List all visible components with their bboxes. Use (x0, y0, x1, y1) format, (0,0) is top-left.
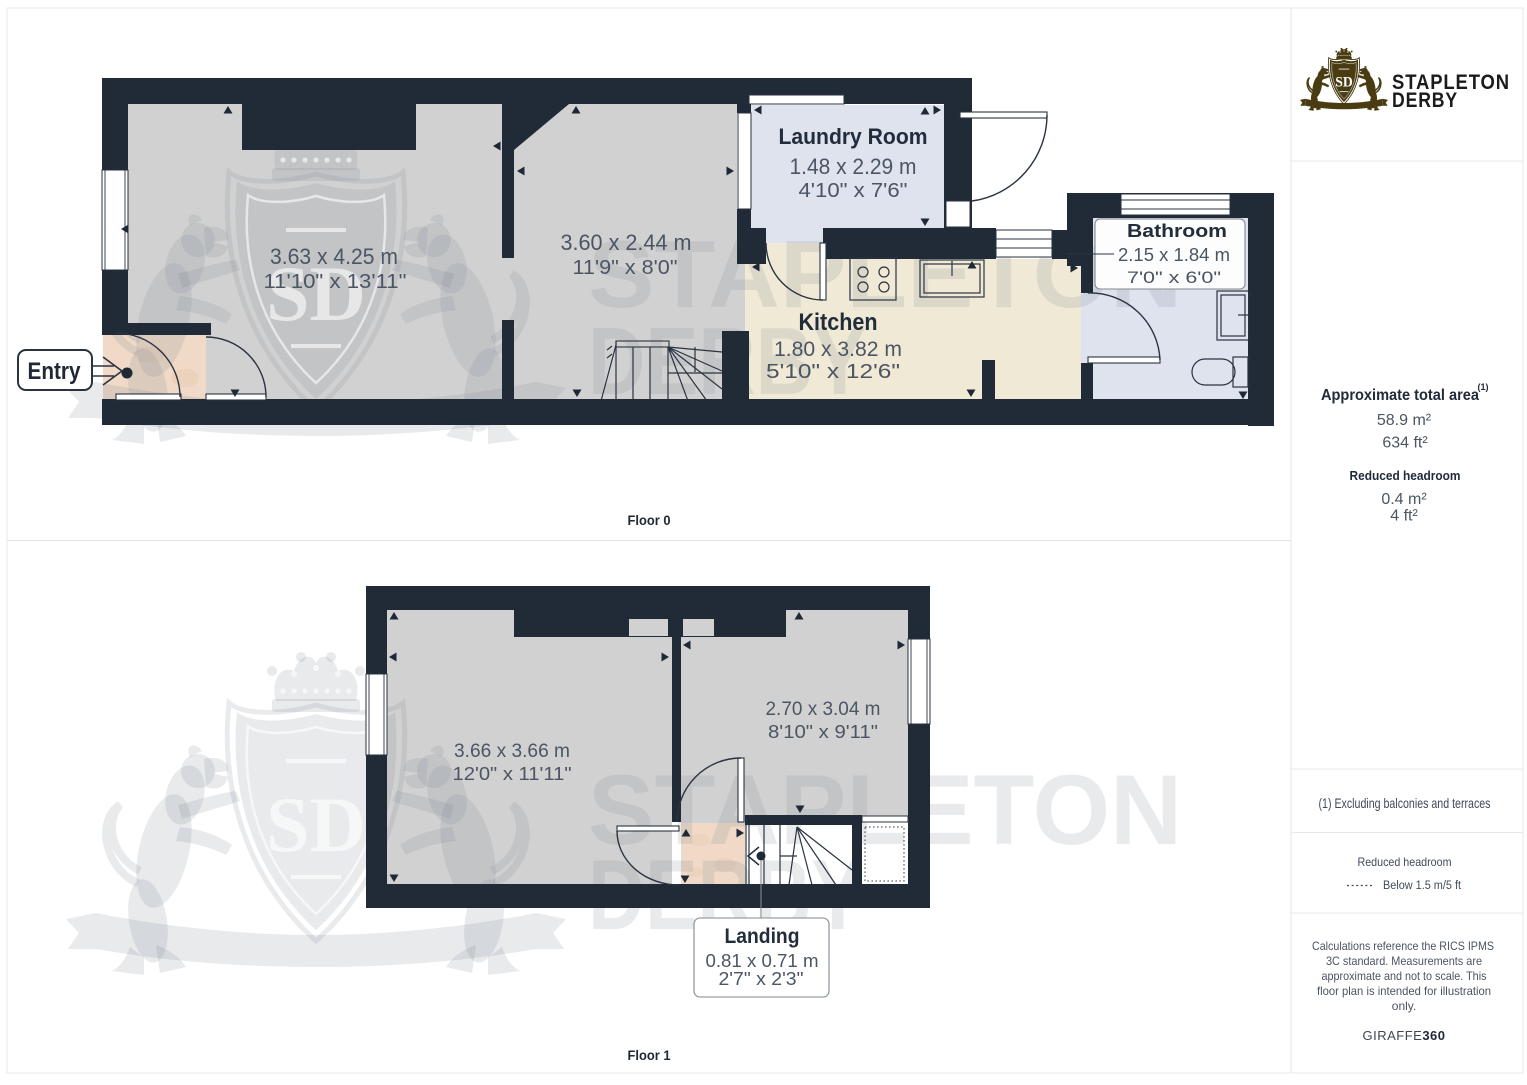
svg-text:floor plan is intended for ill: floor plan is intended for illustration (1317, 984, 1491, 998)
svg-text:3.63 x 4.25 m: 3.63 x 4.25 m (270, 244, 398, 269)
svg-text:SD: SD (1335, 74, 1353, 91)
svg-text:approximate and not to scale.: approximate and not to scale. This (1322, 969, 1487, 983)
svg-text:634 ft²: 634 ft² (1382, 435, 1428, 452)
svg-text:Bathroom: Bathroom (1127, 221, 1227, 241)
svg-text:12'0" x 11'11": 12'0" x 11'11" (453, 763, 572, 784)
svg-text:4'10" x 7'6": 4'10" x 7'6" (799, 179, 908, 202)
svg-text:(1) Excluding balconies and te: (1) Excluding balconies and terraces (1319, 795, 1491, 811)
svg-text:2.15 x 1.84 m: 2.15 x 1.84 m (1118, 245, 1230, 265)
svg-text:7'0" x 6'0": 7'0" x 6'0" (1127, 268, 1221, 287)
svg-text:Approximate total area: Approximate total area (1321, 387, 1479, 404)
svg-text:GIRAFFE360: GIRAFFE360 (1362, 1028, 1445, 1043)
svg-text:Calculations reference the RIC: Calculations reference the RICS IPMS (1312, 939, 1494, 953)
svg-text:11'10" x 13'11": 11'10" x 13'11" (264, 270, 407, 293)
svg-text:Floor 0: Floor 0 (628, 512, 671, 528)
svg-text:only.: only. (1392, 999, 1416, 1013)
svg-text:4 ft²: 4 ft² (1390, 508, 1418, 525)
svg-text:0.4 m²: 0.4 m² (1381, 491, 1427, 508)
svg-text:2.70 x 3.04 m: 2.70 x 3.04 m (766, 698, 881, 720)
svg-text:11'9" x 8'0": 11'9" x 8'0" (573, 256, 678, 279)
svg-text:3C standard. Measurements are: 3C standard. Measurements are (1326, 954, 1482, 968)
svg-text:Entry: Entry (28, 358, 82, 385)
svg-text:Below 1.5 m/5 ft: Below 1.5 m/5 ft (1383, 878, 1462, 892)
svg-text:SD: SD (266, 781, 366, 868)
svg-text:Landing: Landing (725, 925, 800, 948)
svg-text:Floor 1: Floor 1 (628, 1047, 671, 1063)
svg-text:1.80 x 3.82 m: 1.80 x 3.82 m (774, 337, 902, 361)
svg-text:0.81 x 0.71 m: 0.81 x 0.71 m (706, 950, 819, 971)
svg-text:Reduced headroom: Reduced headroom (1350, 469, 1461, 483)
svg-text:DERBY: DERBY (1392, 89, 1458, 112)
svg-text:Kitchen: Kitchen (799, 309, 878, 336)
svg-text:3.66 x 3.66 m: 3.66 x 3.66 m (454, 740, 570, 762)
svg-text:2'7" x 2'3": 2'7" x 2'3" (719, 969, 804, 989)
svg-text:8'10" x 9'11": 8'10" x 9'11" (768, 721, 878, 742)
svg-text:5'10" x 12'6": 5'10" x 12'6" (766, 360, 900, 383)
svg-text:Laundry Room: Laundry Room (779, 124, 928, 149)
svg-text:(1): (1) (1478, 382, 1489, 392)
svg-text:1.48 x 2.29 m: 1.48 x 2.29 m (790, 154, 917, 179)
svg-text:58.9 m²: 58.9 m² (1377, 412, 1432, 429)
svg-text:Reduced headroom: Reduced headroom (1358, 855, 1452, 869)
svg-text:3.60 x 2.44 m: 3.60 x 2.44 m (561, 230, 692, 255)
